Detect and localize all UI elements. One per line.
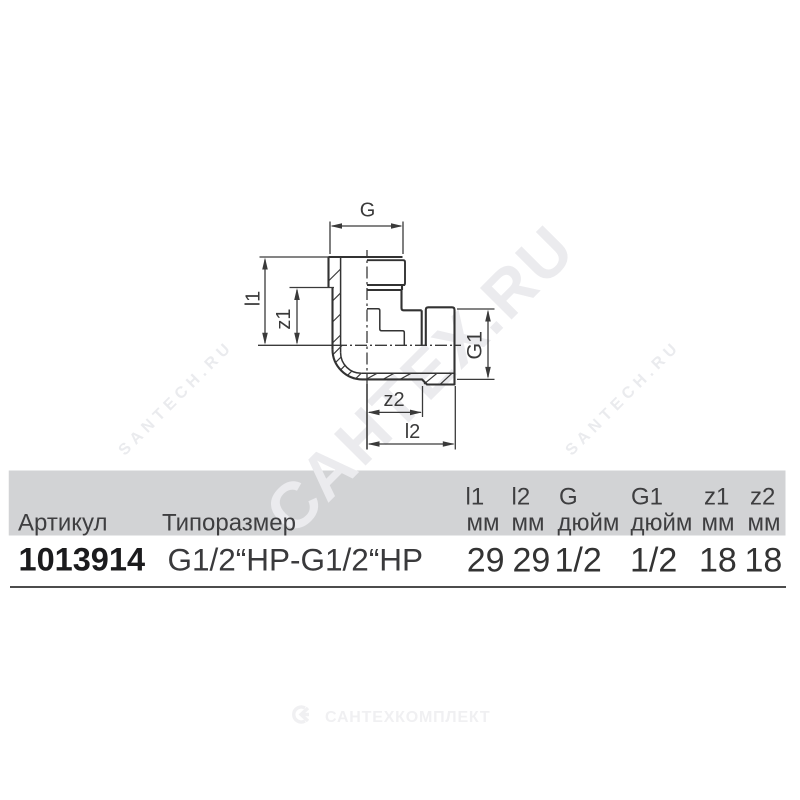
svg-text:z2: z2 bbox=[750, 483, 775, 510]
svg-text:29: 29 bbox=[513, 542, 551, 580]
svg-text:дюйм: дюйм bbox=[631, 509, 693, 536]
svg-text:G1: G1 bbox=[463, 331, 487, 360]
svg-text:дюйм: дюйм bbox=[558, 509, 620, 536]
svg-text:z2: z2 bbox=[383, 389, 404, 411]
svg-text:мм: мм bbox=[512, 509, 545, 536]
svg-text:z1: z1 bbox=[704, 483, 729, 510]
svg-text:G: G bbox=[360, 200, 376, 222]
svg-text:18: 18 bbox=[699, 542, 737, 580]
svg-text:G1/2“HP-G1/2“HP: G1/2“HP-G1/2“HP bbox=[168, 542, 424, 578]
svg-text:1/2: 1/2 bbox=[630, 542, 677, 580]
svg-text:z1: z1 bbox=[273, 308, 295, 329]
svg-text:1/2: 1/2 bbox=[555, 542, 602, 580]
svg-text:мм: мм bbox=[748, 509, 781, 536]
svg-text:l2: l2 bbox=[405, 421, 421, 443]
svg-text:l1: l1 bbox=[466, 483, 485, 510]
svg-text:САНТЕХКОМПЛЕКТ: САНТЕХКОМПЛЕКТ bbox=[325, 709, 490, 726]
svg-text:G1: G1 bbox=[631, 483, 663, 510]
svg-text:1013914: 1013914 bbox=[19, 542, 146, 578]
svg-text:l1: l1 bbox=[243, 291, 265, 307]
svg-text:G: G bbox=[559, 483, 578, 510]
svg-text:мм: мм bbox=[467, 509, 500, 536]
svg-text:l2: l2 bbox=[512, 483, 531, 510]
svg-text:мм: мм bbox=[702, 509, 735, 536]
svg-text:29: 29 bbox=[467, 542, 505, 580]
svg-text:18: 18 bbox=[745, 542, 783, 580]
svg-text:Артикул: Артикул bbox=[18, 509, 107, 536]
svg-text:Типоразмер: Типоразмер bbox=[162, 509, 296, 536]
